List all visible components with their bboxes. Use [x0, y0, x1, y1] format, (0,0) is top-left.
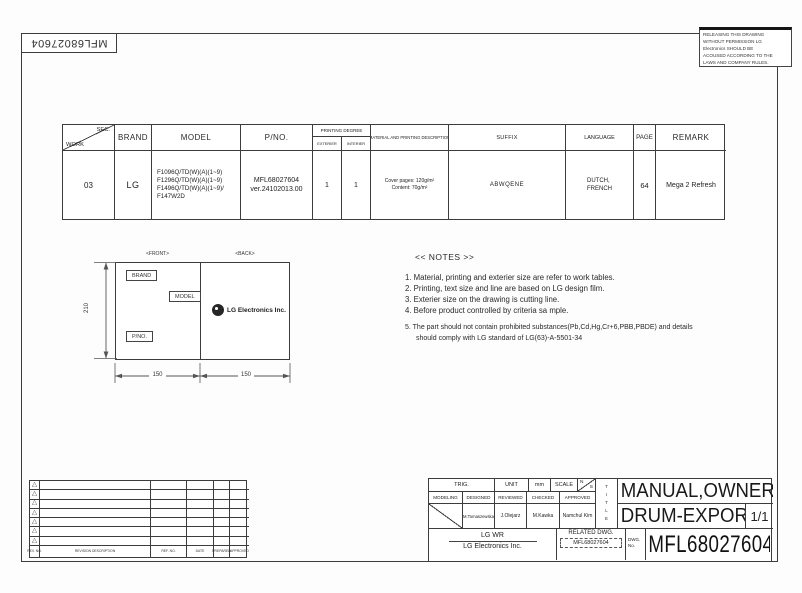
scale-value-ns: N S	[578, 479, 596, 492]
modeling-empty-cell	[429, 504, 463, 529]
revision-prepared-cell	[214, 490, 230, 499]
front-label: <FRONT>	[115, 251, 200, 257]
sec-work-header-cell: SEC. WORK	[63, 125, 115, 151]
back-label: <BACK>	[200, 251, 290, 257]
brand-header: BRAND	[115, 125, 152, 151]
revision-ref-cell	[151, 518, 187, 527]
date-header: DATE	[187, 546, 214, 557]
unit-label: UNIT	[495, 479, 529, 492]
pno-placement-tag: P/NO.	[126, 331, 153, 342]
company-name: LG Electronics Inc.	[429, 543, 556, 550]
release-notice-box: RELEASING THIS DRAWING WITHOUT PERMISSIO…	[699, 27, 792, 67]
revision-prepared-cell	[214, 500, 230, 509]
approved-name: Namchul Kim	[560, 504, 596, 529]
drawing-title-line1: MANUAL,OWNER'S	[618, 479, 773, 504]
revision-description-cell	[40, 537, 151, 546]
brand-value: LG	[115, 151, 152, 219]
revision-triangle-icon: △	[30, 481, 40, 490]
interier-header: INTERIER	[342, 137, 371, 151]
revision-description-cell	[40, 481, 151, 490]
remark-value: Mega 2 Refresh	[656, 151, 726, 219]
revision-description-cell	[40, 500, 151, 509]
drawing-sheet: MFL68027604 RELEASING THIS DRAWING WITHO…	[0, 0, 802, 593]
revision-date-cell	[187, 537, 214, 546]
height-dimension-value: 210	[84, 295, 94, 321]
revision-date-cell	[187, 500, 214, 509]
designed-name: M.Tomaszewska	[463, 504, 495, 529]
cover-spine-divider	[200, 263, 202, 359]
title-vertical-label: TITLE	[604, 484, 609, 524]
approved-header: APPROVED	[560, 492, 596, 504]
height-dimension-lines	[92, 261, 118, 360]
work-label: WORK	[66, 142, 84, 148]
model-line: F1096Q/TD(W)(A)(1~9)	[157, 169, 224, 177]
pno-header: P/NO.	[241, 125, 313, 151]
model-line: F147W2D	[157, 193, 224, 201]
company-divider	[449, 541, 537, 542]
notes-title: << NOTES >>	[415, 252, 474, 262]
brand-placement-tag: BRAND	[126, 270, 157, 281]
modeling-header: MODELING	[429, 492, 463, 504]
model-placement-tag: MODEL	[169, 291, 201, 302]
pno-value: MFL68027604 ver.24102013.00	[241, 151, 313, 219]
title-vertical-label-cell: TITLE	[596, 479, 618, 529]
material-value: Cover pages: 120g/m² Content: 70g/m²	[371, 151, 449, 219]
model-line: F1296Q/TD(W)(A)(1~9)	[157, 177, 224, 185]
language-value: DUTCH, FRENCH	[566, 151, 634, 219]
suffix-value: ABWQENE	[449, 151, 566, 219]
remark-header: REMARK	[656, 125, 726, 151]
rotated-doc-number-box: MFL68027604	[21, 33, 117, 53]
revision-ref-cell	[151, 490, 187, 499]
revision-description-header: REVISION DESCRIPTION	[40, 546, 151, 557]
checked-name: M.Kawka	[527, 504, 560, 529]
language-line: FRENCH	[587, 185, 612, 193]
revision-date-cell	[187, 527, 214, 536]
revision-table: △ △ △ △ △ △ △	[29, 480, 247, 558]
lg-logo-icon	[212, 304, 224, 316]
page-header: PAGE	[634, 125, 656, 151]
material-line: Content: 70g/m²	[385, 185, 434, 193]
notice-line: Electronics SHOULD BE	[703, 46, 789, 53]
note-item-continuation: should comply with LG standard of LG(63)…	[416, 335, 582, 342]
company-dept: LG WR	[429, 529, 556, 539]
revision-approved-cell	[230, 527, 249, 536]
work-value: 03	[63, 151, 115, 219]
exterier-header: EXTERIER	[313, 137, 342, 151]
width-dimension-right: 150	[202, 372, 290, 378]
note-item: 2. Printing, text size and line are base…	[405, 284, 604, 293]
note-item: 5. The part should not contain prohibite…	[405, 324, 693, 331]
note-item: 3. Exterier size on the drawing is cutti…	[405, 295, 559, 304]
reviewed-header: REVIEWED	[495, 492, 527, 504]
work-table: SEC. WORK BRAND MODEL P/NO. PRINTING DEG…	[62, 124, 725, 220]
revision-prepared-cell	[214, 527, 230, 536]
reviewed-name: J.Olejarz	[495, 504, 527, 529]
drawing-title-line2: DRUM-EXPORT	[618, 504, 746, 529]
dwg-number: MFL68027604	[646, 529, 770, 560]
revision-prepared-cell	[214, 481, 230, 490]
revision-prepared-cell	[214, 509, 230, 518]
revision-date-cell	[187, 509, 214, 518]
notice-line: WITHOUT PERMISSION LG	[703, 39, 789, 46]
printing-degree-header: PRINTING DEGREE	[313, 125, 371, 137]
sheet-number: 1/1	[746, 504, 773, 529]
dwg-no-label: DWG. No.	[626, 529, 646, 560]
revision-description-cell	[40, 518, 151, 527]
pno-line: ver.24102013.00	[250, 185, 302, 194]
revision-ref-cell	[151, 500, 187, 509]
related-dwg-value: MFL68027604	[560, 538, 622, 548]
designed-header: DESIGNED	[463, 492, 495, 504]
model-header: MODEL	[152, 125, 241, 151]
revision-description-cell	[40, 490, 151, 499]
notice-line: RELEASING THIS DRAWING	[703, 32, 789, 39]
prepared-header: PREPARED	[214, 546, 230, 557]
note-item: 4. Before product controlled by criteria…	[405, 306, 568, 315]
revision-date-cell	[187, 490, 214, 499]
scale-n: N	[580, 480, 583, 485]
revision-triangle-icon: △	[30, 509, 40, 518]
related-dwg-cell: RELATED DWG. MFL68027604	[557, 529, 626, 560]
revision-ref-cell	[151, 537, 187, 546]
revision-approved-cell	[230, 537, 249, 546]
revision-triangle-icon: △	[30, 490, 40, 499]
scale-s: S	[590, 485, 593, 490]
material-line: Cover pages: 120g/m²	[385, 178, 434, 186]
revision-triangle-icon: △	[30, 527, 40, 536]
scale-label: SCALE	[551, 479, 578, 492]
unit-value: mm	[529, 479, 551, 492]
pno-line: MFL68027604	[250, 176, 302, 185]
revision-prepared-cell	[214, 537, 230, 546]
note-item: 1. Material, printing and exterier size …	[405, 273, 615, 282]
revision-approved-cell	[230, 518, 249, 527]
related-dwg-label: RELATED DWG.	[557, 529, 625, 536]
revision-ref-cell	[151, 509, 187, 518]
notice-line: ACOUSED ACCORDING TO THE	[703, 53, 789, 60]
revision-approved-cell	[230, 481, 249, 490]
revision-date-cell	[187, 481, 214, 490]
language-line: DUTCH,	[587, 177, 612, 185]
revision-approved-cell	[230, 509, 249, 518]
width-dimension-left: 150	[115, 372, 200, 378]
revision-triangle-icon: △	[30, 537, 40, 546]
rev-no-header: REV. NO.	[30, 546, 40, 557]
revision-description-cell	[40, 527, 151, 536]
revision-description-cell	[40, 509, 151, 518]
approved-header: APPROVED	[230, 546, 249, 557]
material-header: MATERIAL AND PRINTING DESCRIPTION	[371, 125, 449, 151]
revision-approved-cell	[230, 500, 249, 509]
sec-label: SEC.	[96, 127, 110, 133]
language-header: LANGUAGE	[566, 125, 634, 151]
trig-label: TRIG.	[429, 479, 495, 492]
model-value: F1096Q/TD(W)(A)(1~9) F1296Q/TD(W)(A)(1~9…	[152, 151, 241, 219]
revision-approved-cell	[230, 490, 249, 499]
ref-no-header: REF. NO.	[151, 546, 187, 557]
rotated-doc-number: MFL68027604	[31, 37, 107, 49]
checked-header: CHECKED	[527, 492, 560, 504]
notice-line: LAWS AND COMPANY RULES.	[703, 60, 789, 67]
revision-date-cell	[187, 518, 214, 527]
exterier-value: 1	[313, 151, 342, 219]
revision-triangle-icon: △	[30, 500, 40, 509]
revision-ref-cell	[151, 527, 187, 536]
interier-value: 1	[342, 151, 371, 219]
page-value: 64	[634, 151, 656, 219]
model-line: F1496Q/TD(W)(A)(1~9)/	[157, 185, 224, 193]
revision-triangle-icon: △	[30, 518, 40, 527]
revision-prepared-cell	[214, 518, 230, 527]
lg-logo-text: LG Electronics Inc.	[227, 307, 286, 314]
suffix-header: SUFFIX	[449, 125, 566, 151]
company-cell: LG WR LG Electronics Inc.	[429, 529, 557, 560]
title-block: TRIG. UNIT mm SCALE N S MODELING DESIGNE…	[428, 478, 772, 562]
revision-ref-cell	[151, 481, 187, 490]
